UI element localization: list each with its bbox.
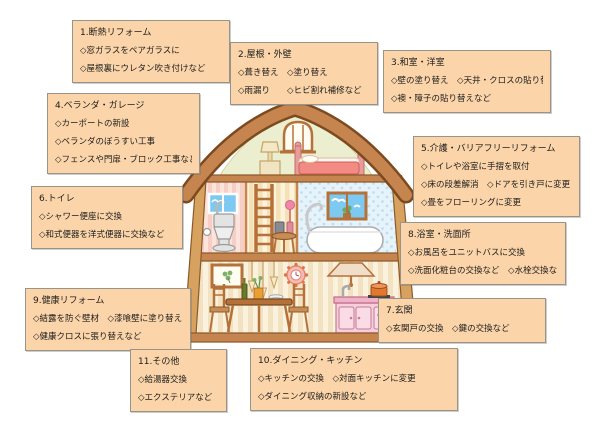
category-box-others: 11.その他 ◇給湯器交換 ◇エクステリアなど bbox=[130, 349, 227, 412]
category-item: ◇ダイニング収納の新設など bbox=[258, 388, 450, 406]
category-box-bathroom-washroom: 8.浴室・洗面所 ◇お風呂をユニットバスに交換 ◇洗面化粧台の交換など ◇水栓交… bbox=[400, 222, 566, 285]
category-item: ◇ベランダのぼうすい工事 bbox=[55, 133, 192, 151]
category-title: 8.浴室・洗面所 bbox=[408, 226, 558, 244]
category-item: ◇襖・障子の貼り替えなど bbox=[391, 90, 543, 108]
category-item: ◇エクステリアなど bbox=[138, 389, 219, 407]
category-box-roof-exterior-wall: 2.屋根・外壁 ◇葺き替え ◇塗り替え ◇雨漏り ◇ヒビ割れ補修など bbox=[230, 42, 378, 105]
category-item: ◇カーポートの新設 bbox=[55, 115, 192, 133]
bathroom-window bbox=[328, 193, 366, 219]
category-item: ◇畳をフローリングに変更 bbox=[421, 194, 572, 212]
category-box-dining-kitchen: 10.ダイニング・キッチン ◇キッチンの交換 ◇対面キッチンに変更 ◇ダイニング… bbox=[250, 348, 458, 411]
category-item: ◇葺き替え ◇塗り替え bbox=[238, 64, 370, 82]
category-item: ◇壁の塗り替え ◇天井・クロスの貼り替え bbox=[391, 72, 543, 90]
category-item: ◇給湯器交換 bbox=[138, 371, 219, 389]
category-item: ◇窓ガラスをペアガラスに bbox=[80, 42, 222, 60]
category-title: 2.屋根・外壁 bbox=[238, 46, 370, 64]
category-title: 7.玄関 bbox=[386, 302, 538, 320]
category-box-health-reform: 9.健康リフォーム ◇結露を防ぐ壁材 ◇漆喰壁に塗り替え ◇健康クロスに張り替え… bbox=[25, 288, 191, 351]
category-item: ◇トイレや浴室に手摺を取付 bbox=[421, 158, 572, 176]
category-title: 9.健康リフォーム bbox=[33, 292, 183, 310]
category-title: 11.その他 bbox=[138, 353, 219, 371]
category-item: ◇健康クロスに張り替えなど bbox=[33, 328, 183, 346]
renovation-diagram: 1.断熱リフォーム ◇窓ガラスをペアガラスに ◇屋根裏にウレタン吹き付けなど 2… bbox=[0, 0, 600, 426]
category-item: ◇結露を防ぐ壁材 ◇漆喰壁に塗り替え bbox=[33, 310, 183, 328]
category-box-care-barrier-free: 5.介護・バリアフリーリフォーム ◇トイレや浴室に手摺を取付 ◇床の段差解消 ◇… bbox=[413, 136, 580, 217]
category-box-japanese-western-room: 3.和室・洋室 ◇壁の塗り替え ◇天井・クロスの貼り替え ◇襖・障子の貼り替えな… bbox=[383, 50, 551, 113]
category-title: 4.ベランダ・ガレージ bbox=[55, 97, 192, 115]
category-item: ◇玄関戸の交換 ◇鍵の交換など bbox=[386, 320, 538, 338]
category-item: ◇雨漏り ◇ヒビ割れ補修など bbox=[238, 82, 370, 100]
toilet-paper-icon bbox=[204, 229, 211, 236]
category-title: 1.断熱リフォーム bbox=[80, 24, 222, 42]
category-box-toilet: 6.トイレ ◇シャワー便座に交換 ◇和式便器を洋式便器に交換など bbox=[31, 186, 183, 249]
category-box-entrance: 7.玄関 ◇玄関戸の交換 ◇鍵の交換など bbox=[378, 298, 546, 343]
toilet-window bbox=[209, 194, 237, 213]
category-title: 10.ダイニング・キッチン bbox=[258, 352, 450, 370]
category-item: ◇洗面化粧台の交換など ◇水栓交換など bbox=[408, 262, 558, 280]
category-item: ◇和式便器を洋式便器に交換など bbox=[39, 226, 175, 244]
picture-frame bbox=[212, 265, 242, 287]
category-item: ◇床の段差解消 ◇ドアを引き戸に変更 bbox=[421, 176, 572, 194]
second-floor bbox=[202, 180, 396, 257]
category-title: 6.トイレ bbox=[39, 190, 175, 208]
category-item: ◇シャワー便座に交換 bbox=[39, 208, 175, 226]
ground-floor bbox=[195, 261, 404, 333]
category-box-veranda-garage: 4.ベランダ・ガレージ ◇カーポートの新設 ◇ベランダのぼうすい工事 ◇フェンス… bbox=[47, 93, 200, 174]
category-box-insulation: 1.断熱リフォーム ◇窓ガラスをペアガラスに ◇屋根裏にウレタン吹き付けなど bbox=[72, 20, 230, 83]
category-title: 5.介護・バリアフリーリフォーム bbox=[421, 140, 572, 158]
category-item: ◇お風呂をユニットバスに交換 bbox=[408, 244, 558, 262]
category-title: 3.和室・洋室 bbox=[391, 54, 543, 72]
category-item: ◇フェンスや門扉・ブロック工事など bbox=[55, 151, 192, 169]
category-item: ◇キッチンの交換 ◇対面キッチンに変更 bbox=[258, 370, 450, 388]
category-item: ◇屋根裏にウレタン吹き付けなど bbox=[80, 60, 222, 78]
